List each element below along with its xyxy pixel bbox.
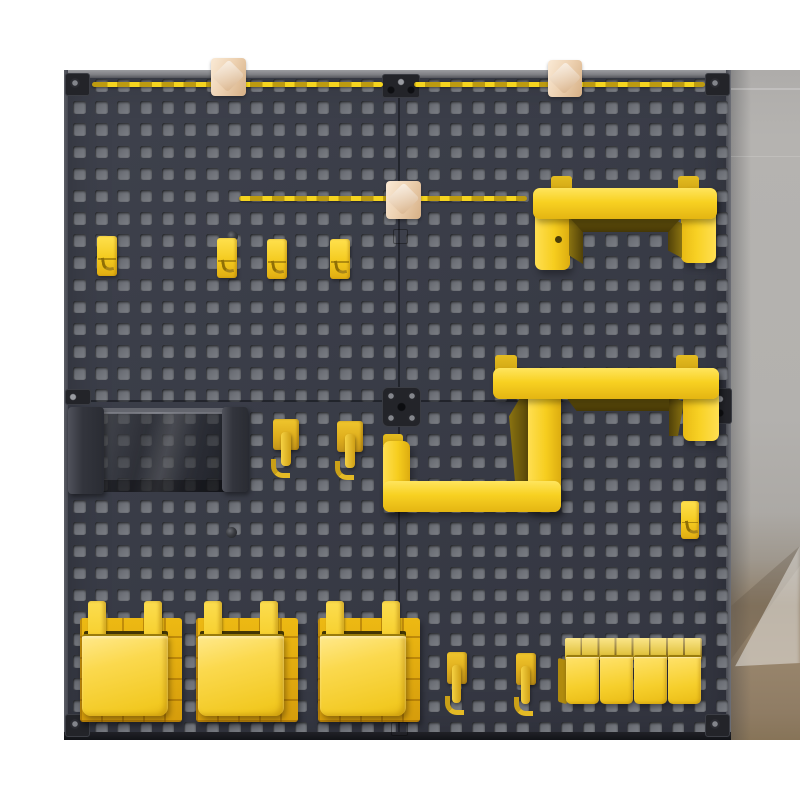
peg-hole bbox=[184, 323, 197, 336]
peg-hole bbox=[649, 611, 662, 624]
peg-hole bbox=[383, 101, 396, 114]
peg-hole bbox=[450, 256, 463, 269]
peg-hole bbox=[428, 212, 441, 225]
peg-hole bbox=[361, 367, 374, 380]
acrylic-tray bbox=[68, 404, 248, 494]
peg-hole bbox=[140, 589, 153, 602]
peg-hole bbox=[162, 234, 175, 247]
peg-hole bbox=[539, 545, 552, 558]
peg-hole bbox=[273, 367, 286, 380]
peg-hole bbox=[450, 234, 463, 247]
peg-hole bbox=[140, 146, 153, 159]
peg-hole bbox=[672, 589, 685, 602]
peg-hole bbox=[406, 567, 419, 580]
peg-hole bbox=[516, 123, 529, 136]
peg-hole bbox=[716, 700, 729, 713]
peg-hole bbox=[428, 589, 441, 602]
peg-hole bbox=[295, 545, 308, 558]
peg-hole bbox=[317, 500, 330, 513]
peg-hole bbox=[383, 545, 396, 558]
peg-hole bbox=[516, 146, 529, 159]
peg-hole bbox=[361, 567, 374, 580]
peg-hole bbox=[672, 301, 685, 314]
peg-hole bbox=[140, 234, 153, 247]
peg-hole bbox=[406, 123, 419, 136]
tray-bracket bbox=[68, 407, 104, 494]
peg-hole bbox=[250, 234, 263, 247]
peg-hole bbox=[206, 301, 219, 314]
peg-hole bbox=[339, 545, 352, 558]
peg-hole bbox=[450, 323, 463, 336]
peg-hole bbox=[273, 522, 286, 535]
peg-hole bbox=[295, 567, 308, 580]
peg-hole bbox=[428, 301, 441, 314]
peg-hole bbox=[317, 279, 330, 292]
peg-hole bbox=[250, 478, 263, 491]
peg-hole bbox=[95, 522, 108, 535]
peg-hole bbox=[561, 123, 574, 136]
peg-hole bbox=[494, 323, 507, 336]
peg-hole bbox=[672, 323, 685, 336]
peg-hole bbox=[472, 301, 485, 314]
peg-hole bbox=[95, 146, 108, 159]
peg-hole bbox=[140, 323, 153, 336]
peg-hole bbox=[428, 545, 441, 558]
peg-hole bbox=[516, 279, 529, 292]
peg-hole bbox=[117, 522, 130, 535]
peg-hole bbox=[605, 146, 618, 159]
peg-hole bbox=[694, 611, 707, 624]
peg-hole bbox=[206, 567, 219, 580]
peg-hole bbox=[162, 567, 175, 580]
peg-hole bbox=[450, 611, 463, 624]
peg-hole bbox=[539, 611, 552, 624]
peg-hole bbox=[228, 146, 241, 159]
peg-hole bbox=[383, 522, 396, 535]
peg-hole bbox=[95, 212, 108, 225]
peg-hole bbox=[317, 234, 330, 247]
peg-hole bbox=[472, 589, 485, 602]
peg-hole bbox=[539, 700, 552, 713]
peg-hole bbox=[140, 256, 153, 269]
peg-hole bbox=[583, 301, 596, 314]
peg-hole bbox=[140, 168, 153, 181]
peg-hole bbox=[494, 234, 507, 247]
wooden-rail-clip bbox=[211, 58, 246, 96]
peg-hole bbox=[472, 633, 485, 646]
peg-hole bbox=[494, 279, 507, 292]
peg-hole bbox=[73, 567, 86, 580]
peg-hole bbox=[494, 655, 507, 668]
peg-hole bbox=[494, 678, 507, 691]
peg-hole bbox=[516, 212, 529, 225]
peg-hole bbox=[605, 611, 618, 624]
peg-hole bbox=[494, 633, 507, 646]
peg-hole bbox=[317, 146, 330, 159]
peg-hole bbox=[605, 301, 618, 314]
peg-hole bbox=[250, 101, 263, 114]
peg-hole bbox=[716, 633, 729, 646]
peg-hole bbox=[184, 367, 197, 380]
peg-hole bbox=[428, 101, 441, 114]
peg-hole bbox=[228, 589, 241, 602]
peg-hole bbox=[206, 279, 219, 292]
peg-hole bbox=[406, 146, 419, 159]
peg-hole bbox=[583, 146, 596, 159]
peg-hole bbox=[516, 633, 529, 646]
peg-hole bbox=[250, 367, 263, 380]
peg-hole bbox=[73, 323, 86, 336]
peg-hole bbox=[273, 589, 286, 602]
peg-hole bbox=[539, 101, 552, 114]
peg-hole bbox=[472, 655, 485, 668]
peg-hole bbox=[73, 500, 86, 513]
bottom-j-hook bbox=[516, 653, 536, 709]
peg-hole bbox=[472, 678, 485, 691]
peg-hole bbox=[649, 545, 662, 558]
peg-hole bbox=[694, 279, 707, 292]
peg-hole bbox=[162, 323, 175, 336]
peg-hole bbox=[317, 434, 330, 447]
peg-hole bbox=[428, 123, 441, 136]
peg-hole bbox=[428, 678, 441, 691]
peg-hole bbox=[361, 345, 374, 358]
peg-hole bbox=[627, 611, 640, 624]
peg-hole bbox=[494, 522, 507, 535]
bottom-j-hook bbox=[447, 652, 467, 708]
peg-hole bbox=[295, 168, 308, 181]
peg-hole bbox=[450, 522, 463, 535]
peg-hole bbox=[716, 301, 729, 314]
peg-hole bbox=[450, 633, 463, 646]
peg-hole bbox=[206, 123, 219, 136]
peg-hole bbox=[162, 190, 175, 203]
peg-hole bbox=[516, 567, 529, 580]
peg-hole bbox=[73, 101, 86, 114]
peg-hole bbox=[317, 168, 330, 181]
peg-hole bbox=[117, 345, 130, 358]
peg-hole bbox=[339, 345, 352, 358]
small-hook bbox=[267, 239, 287, 279]
peg-hole bbox=[716, 655, 729, 668]
peg-hole bbox=[516, 168, 529, 181]
peg-hole bbox=[627, 589, 640, 602]
peg-hole bbox=[273, 146, 286, 159]
peg-hole bbox=[162, 212, 175, 225]
peg-hole bbox=[162, 500, 175, 513]
peg-hole bbox=[583, 522, 596, 535]
peg-hole bbox=[95, 168, 108, 181]
peg-hole bbox=[539, 655, 552, 668]
peg-hole bbox=[206, 101, 219, 114]
peg-hole bbox=[206, 345, 219, 358]
peg-hole bbox=[317, 101, 330, 114]
peg-hole bbox=[162, 279, 175, 292]
peg-hole bbox=[539, 146, 552, 159]
peg-hole bbox=[561, 611, 574, 624]
peg-hole bbox=[561, 567, 574, 580]
peg-hole bbox=[228, 545, 241, 558]
peg-hole bbox=[672, 545, 685, 558]
wall-trim-line bbox=[731, 88, 800, 90]
peg-hole bbox=[561, 101, 574, 114]
peg-hole bbox=[605, 123, 618, 136]
peg-hole bbox=[250, 589, 263, 602]
peg-hole bbox=[406, 522, 419, 535]
peg-hole bbox=[117, 101, 130, 114]
peg-hole bbox=[361, 301, 374, 314]
peg-hole bbox=[206, 190, 219, 203]
peg-hole bbox=[162, 522, 175, 535]
mini-bin bbox=[634, 655, 667, 704]
peg-hole bbox=[206, 168, 219, 181]
peg-hole bbox=[494, 101, 507, 114]
peg-hole bbox=[95, 500, 108, 513]
peg-hole bbox=[317, 367, 330, 380]
peg-hole bbox=[317, 545, 330, 558]
peg-hole bbox=[539, 279, 552, 292]
peg-hole bbox=[361, 522, 374, 535]
peg-hole bbox=[95, 279, 108, 292]
peg-hole bbox=[494, 212, 507, 225]
peg-hole bbox=[184, 345, 197, 358]
peg-hole bbox=[561, 545, 574, 558]
bin-front-face bbox=[320, 634, 406, 716]
peg-hole bbox=[295, 500, 308, 513]
peg-hole bbox=[383, 168, 396, 181]
peg-hole bbox=[361, 545, 374, 558]
peg-hole bbox=[317, 456, 330, 469]
background-wall bbox=[731, 70, 800, 740]
mini-bin bbox=[668, 655, 701, 704]
peg-hole bbox=[162, 168, 175, 181]
peg-hole bbox=[73, 367, 86, 380]
peg-hole bbox=[317, 323, 330, 336]
peg-hole bbox=[73, 545, 86, 558]
peg-hole bbox=[672, 279, 685, 292]
peg-hole bbox=[649, 146, 662, 159]
peg-hole bbox=[250, 256, 263, 269]
peg-hole bbox=[649, 567, 662, 580]
peg-hole bbox=[406, 101, 419, 114]
peg-hole bbox=[361, 168, 374, 181]
peg-hole bbox=[361, 123, 374, 136]
peg-hole bbox=[184, 101, 197, 114]
peg-hole bbox=[472, 279, 485, 292]
peg-hole bbox=[716, 279, 729, 292]
peg-hole bbox=[716, 101, 729, 114]
peg-hole bbox=[273, 212, 286, 225]
seam-clip bbox=[393, 229, 408, 244]
peg-hole bbox=[140, 545, 153, 558]
peg-hole bbox=[206, 146, 219, 159]
peg-hole bbox=[184, 234, 197, 247]
peg-hole bbox=[627, 101, 640, 114]
peg-hole bbox=[250, 434, 263, 447]
hanging-rail-middle bbox=[239, 196, 527, 201]
peg-hole bbox=[605, 522, 618, 535]
peg-hole bbox=[117, 500, 130, 513]
peg-hole bbox=[672, 611, 685, 624]
mini-bin bbox=[566, 655, 599, 704]
peg-hole bbox=[184, 301, 197, 314]
peg-hole bbox=[450, 212, 463, 225]
peg-hole bbox=[162, 256, 175, 269]
peg-hole bbox=[295, 279, 308, 292]
small-hook bbox=[217, 238, 237, 278]
peg-hole bbox=[273, 101, 286, 114]
peg-hole bbox=[716, 323, 729, 336]
peg-hole bbox=[317, 256, 330, 269]
peg-hole bbox=[649, 323, 662, 336]
peg-hole bbox=[361, 412, 374, 425]
peg-hole bbox=[494, 168, 507, 181]
peg-hole bbox=[428, 611, 441, 624]
peg-hole bbox=[539, 123, 552, 136]
peg-hole bbox=[317, 522, 330, 535]
peg-hole bbox=[140, 190, 153, 203]
peg-hole bbox=[250, 123, 263, 136]
peg-hole bbox=[250, 323, 263, 336]
zigzag-shelf-bracket bbox=[381, 352, 720, 515]
peg-hole bbox=[583, 611, 596, 624]
peg-hole bbox=[649, 522, 662, 535]
shelf-top-bar bbox=[533, 188, 717, 219]
peg-hole bbox=[117, 367, 130, 380]
peg-hole bbox=[250, 345, 263, 358]
peg-hole bbox=[583, 545, 596, 558]
peg-hole bbox=[361, 146, 374, 159]
peg-hole bbox=[317, 123, 330, 136]
peg-hole bbox=[140, 123, 153, 136]
peg-hole bbox=[295, 146, 308, 159]
peg-hole bbox=[184, 545, 197, 558]
peg-hole bbox=[228, 101, 241, 114]
peg-hole bbox=[472, 256, 485, 269]
peg-hole bbox=[273, 168, 286, 181]
peg-hole bbox=[228, 212, 241, 225]
peg-hole bbox=[406, 323, 419, 336]
peg-hole bbox=[140, 500, 153, 513]
peg-hole bbox=[649, 123, 662, 136]
peg-hole bbox=[317, 345, 330, 358]
peg-hole bbox=[361, 234, 374, 247]
peg-hole bbox=[472, 700, 485, 713]
peg-hole bbox=[627, 146, 640, 159]
peg-hole bbox=[339, 589, 352, 602]
peg-hole bbox=[716, 522, 729, 535]
hook-curl bbox=[335, 461, 354, 480]
peg-hole bbox=[339, 522, 352, 535]
peg-hole bbox=[95, 367, 108, 380]
peg-hole bbox=[184, 168, 197, 181]
peg-hole bbox=[317, 212, 330, 225]
peg-hole bbox=[228, 500, 241, 513]
peg-hole bbox=[450, 279, 463, 292]
peg-hole bbox=[250, 301, 263, 314]
peg-hole bbox=[162, 545, 175, 558]
peg-hole bbox=[516, 101, 529, 114]
peg-hole bbox=[716, 678, 729, 691]
peg-hole bbox=[561, 279, 574, 292]
peg-hole bbox=[406, 168, 419, 181]
peg-hole bbox=[317, 412, 330, 425]
peg-hole bbox=[539, 567, 552, 580]
peg-hole bbox=[317, 567, 330, 580]
peg-hole bbox=[605, 279, 618, 292]
peg-hole bbox=[516, 301, 529, 314]
peg-hole bbox=[140, 279, 153, 292]
peg-hole bbox=[428, 168, 441, 181]
small-hook bbox=[330, 239, 350, 279]
peg-hole bbox=[339, 367, 352, 380]
peg-hole bbox=[494, 700, 507, 713]
peg-hole bbox=[450, 545, 463, 558]
peg-hole bbox=[361, 323, 374, 336]
peg-hole bbox=[228, 279, 241, 292]
peg-hole bbox=[295, 522, 308, 535]
peg-hole bbox=[649, 279, 662, 292]
peg-hole bbox=[339, 168, 352, 181]
peg-hole bbox=[539, 522, 552, 535]
peg-hole bbox=[472, 522, 485, 535]
peg-hole bbox=[250, 456, 263, 469]
peg-hole bbox=[250, 279, 263, 292]
peg-hole bbox=[406, 589, 419, 602]
peg-hole bbox=[95, 589, 108, 602]
peg-hole bbox=[117, 256, 130, 269]
peg-hole bbox=[561, 522, 574, 535]
peg-hole bbox=[539, 633, 552, 646]
peg-hole bbox=[117, 545, 130, 558]
peg-hole bbox=[339, 500, 352, 513]
peg-hole bbox=[494, 146, 507, 159]
peg-hole bbox=[295, 478, 308, 491]
peg-hole bbox=[539, 301, 552, 314]
peg-hole bbox=[605, 101, 618, 114]
peg-hole bbox=[228, 168, 241, 181]
peg-hole bbox=[339, 567, 352, 580]
peg-hole bbox=[561, 146, 574, 159]
peg-hole bbox=[361, 500, 374, 513]
peg-hole bbox=[95, 545, 108, 558]
peg-hole bbox=[583, 279, 596, 292]
peg-hole bbox=[73, 234, 86, 247]
peg-hole bbox=[450, 168, 463, 181]
peg-hole bbox=[184, 500, 197, 513]
peg-hole bbox=[162, 146, 175, 159]
peg-hole bbox=[184, 522, 197, 535]
peg-hole bbox=[295, 589, 308, 602]
magnet-dot bbox=[226, 527, 237, 538]
peg-hole bbox=[561, 589, 574, 602]
peg-hole bbox=[140, 567, 153, 580]
peg-hole bbox=[649, 301, 662, 314]
peg-hole bbox=[273, 123, 286, 136]
peg-hole bbox=[450, 301, 463, 314]
peg-hole bbox=[383, 323, 396, 336]
peg-hole bbox=[250, 168, 263, 181]
peg-hole bbox=[250, 500, 263, 513]
peg-hole bbox=[383, 589, 396, 602]
left-seam-connector-plate bbox=[65, 389, 91, 405]
shelf-screw bbox=[555, 236, 562, 243]
peg-hole bbox=[472, 168, 485, 181]
peg-hole bbox=[605, 545, 618, 558]
peg-hole bbox=[627, 522, 640, 535]
peg-hole bbox=[339, 301, 352, 314]
peg-hole bbox=[339, 146, 352, 159]
